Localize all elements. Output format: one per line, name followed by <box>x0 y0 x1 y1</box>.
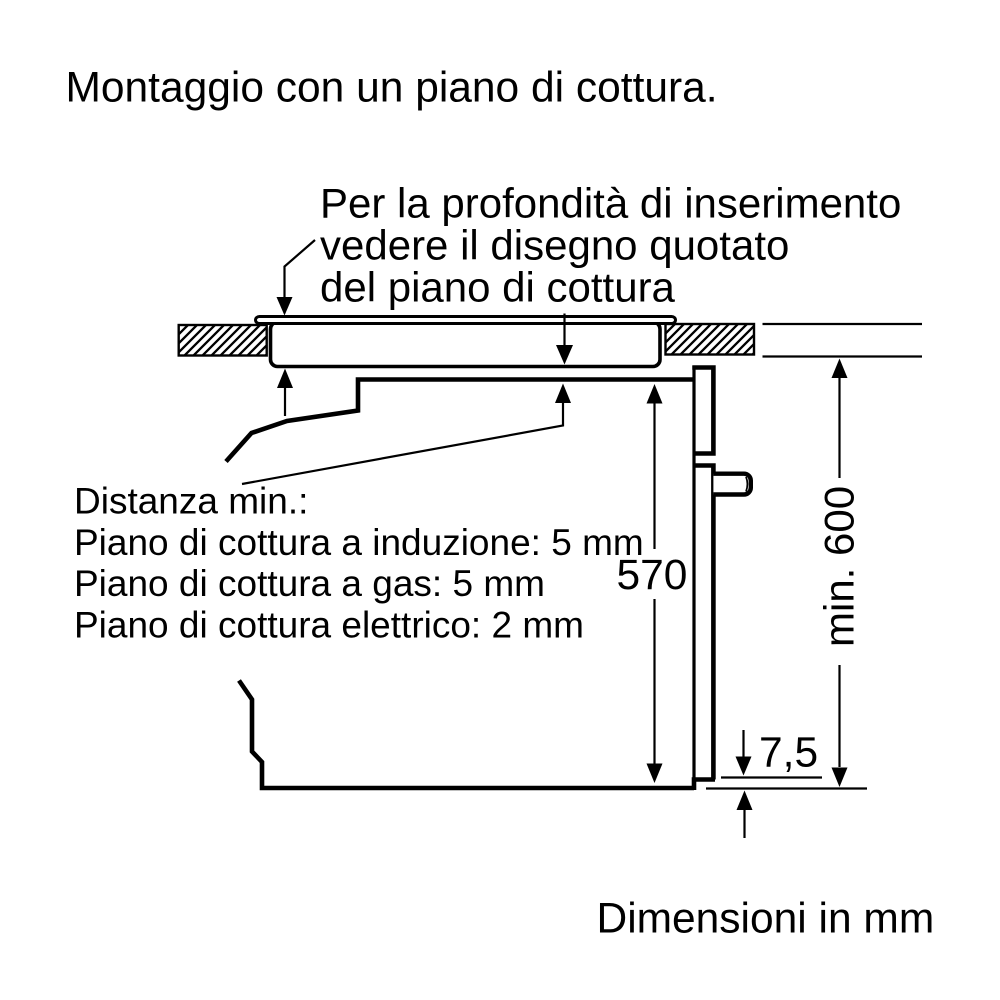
svg-text:Per la profondità di inserimen: Per la profondità di inserimento <box>320 179 901 226</box>
svg-text:min. 600: min. 600 <box>816 486 863 647</box>
svg-text:Piano di cottura elettrico: 2: Piano di cottura elettrico: 2 mm <box>74 604 584 645</box>
svg-text:Dimensioni in mm: Dimensioni in mm <box>597 896 935 943</box>
svg-text:570: 570 <box>617 552 688 599</box>
svg-text:Piano di cottura a gas: 5 mm: Piano di cottura a gas: 5 mm <box>74 563 545 604</box>
svg-text:vedere il disegno quotato: vedere il disegno quotato <box>320 222 789 269</box>
svg-text:Montaggio con un piano di cott: Montaggio con un piano di cottura. <box>66 65 718 112</box>
svg-text:Piano di cottura a induzione:: Piano di cottura a induzione: 5 mm <box>74 522 644 563</box>
svg-text:7,5: 7,5 <box>759 730 818 777</box>
svg-text:del piano di cottura: del piano di cottura <box>320 264 676 311</box>
svg-text:Distanza min.:: Distanza min.: <box>74 481 308 522</box>
